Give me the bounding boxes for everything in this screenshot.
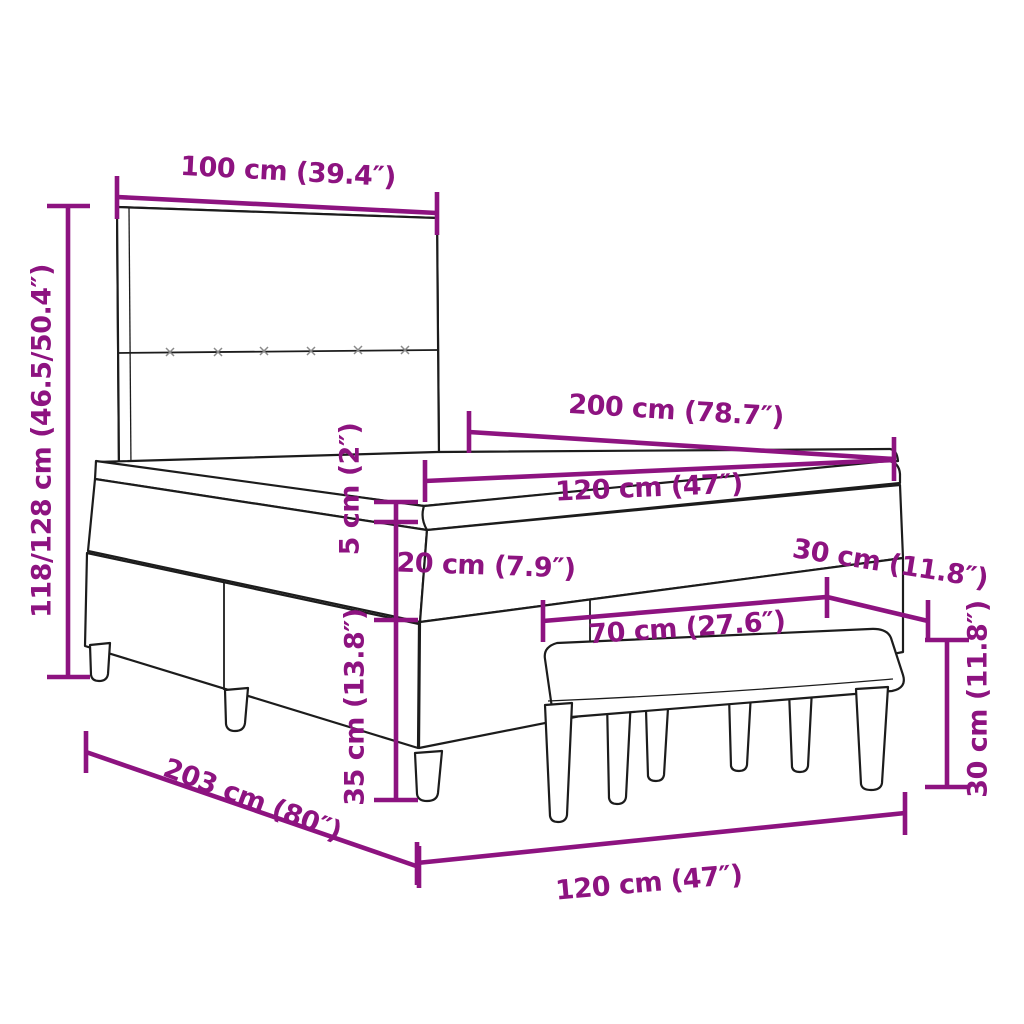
bench-leg bbox=[856, 687, 888, 790]
frame-length-label: 203 cm (80″) bbox=[159, 753, 346, 848]
overall-height-label: 118/128 cm (46.5/50.4″) bbox=[27, 264, 58, 618]
bed-length-label: 200 cm (78.7″) bbox=[567, 389, 784, 433]
dim-overall-height: 118/128 cm (46.5/50.4″) bbox=[27, 206, 91, 677]
dim-bench-height: 30 cm (11.8″) bbox=[925, 600, 994, 797]
bed-leg bbox=[225, 688, 248, 731]
headboard-frame bbox=[117, 207, 439, 470]
bed-dimension-diagram: 100 cm (39.4″) 118/128 cm (46.5/50.4″) 2… bbox=[0, 0, 1024, 1024]
topper-height-label: 5 cm (2″) bbox=[335, 423, 366, 556]
diagram-canvas: 100 cm (39.4″) 118/128 cm (46.5/50.4″) 2… bbox=[0, 0, 1024, 1024]
mattress-height-label: 20 cm (7.9″) bbox=[396, 547, 576, 584]
bed-leg bbox=[415, 751, 442, 801]
headboard bbox=[110, 200, 455, 475]
bed-leg bbox=[90, 643, 110, 681]
frame-width-label: 120 cm (47″) bbox=[554, 859, 744, 906]
base-height-label: 35 cm (13.8″) bbox=[340, 608, 371, 805]
headboard-width-label: 100 cm (39.4″) bbox=[180, 151, 397, 193]
dim-frame-width: 120 cm (47″) bbox=[417, 792, 905, 907]
bench-leg bbox=[646, 708, 668, 781]
bed-drawing bbox=[85, 200, 904, 822]
bench-leg bbox=[545, 703, 572, 822]
bench bbox=[545, 629, 904, 822]
bench-leg bbox=[789, 689, 812, 772]
bench-height-label: 30 cm (11.8″) bbox=[963, 600, 994, 797]
